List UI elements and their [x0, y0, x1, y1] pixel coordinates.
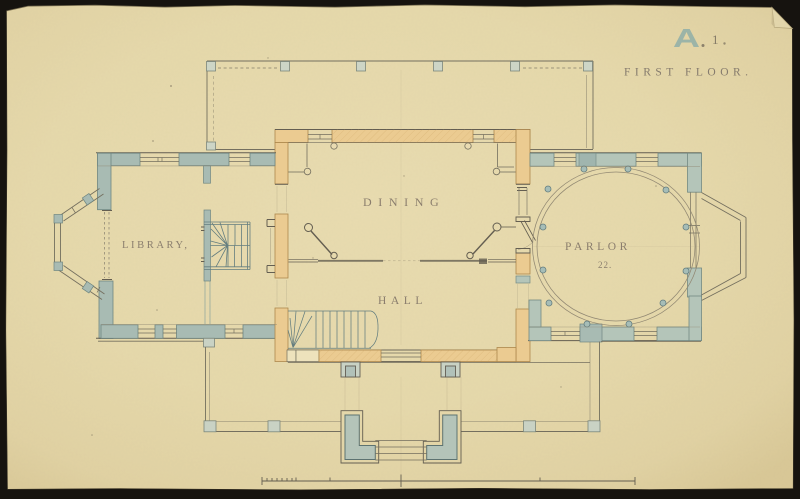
svg-text:1: 1 — [712, 32, 719, 47]
svg-text:PARLOR: PARLOR — [565, 241, 631, 253]
svg-text:FIRST FLOOR.: FIRST FLOOR. — [624, 67, 753, 79]
svg-text:22.: 22. — [598, 260, 612, 270]
svg-text:LIBRARY,: LIBRARY, — [122, 240, 190, 251]
svg-text:HALL: HALL — [378, 295, 427, 307]
svg-text:A: A — [673, 23, 700, 53]
svg-text:DINING: DINING — [363, 195, 445, 209]
